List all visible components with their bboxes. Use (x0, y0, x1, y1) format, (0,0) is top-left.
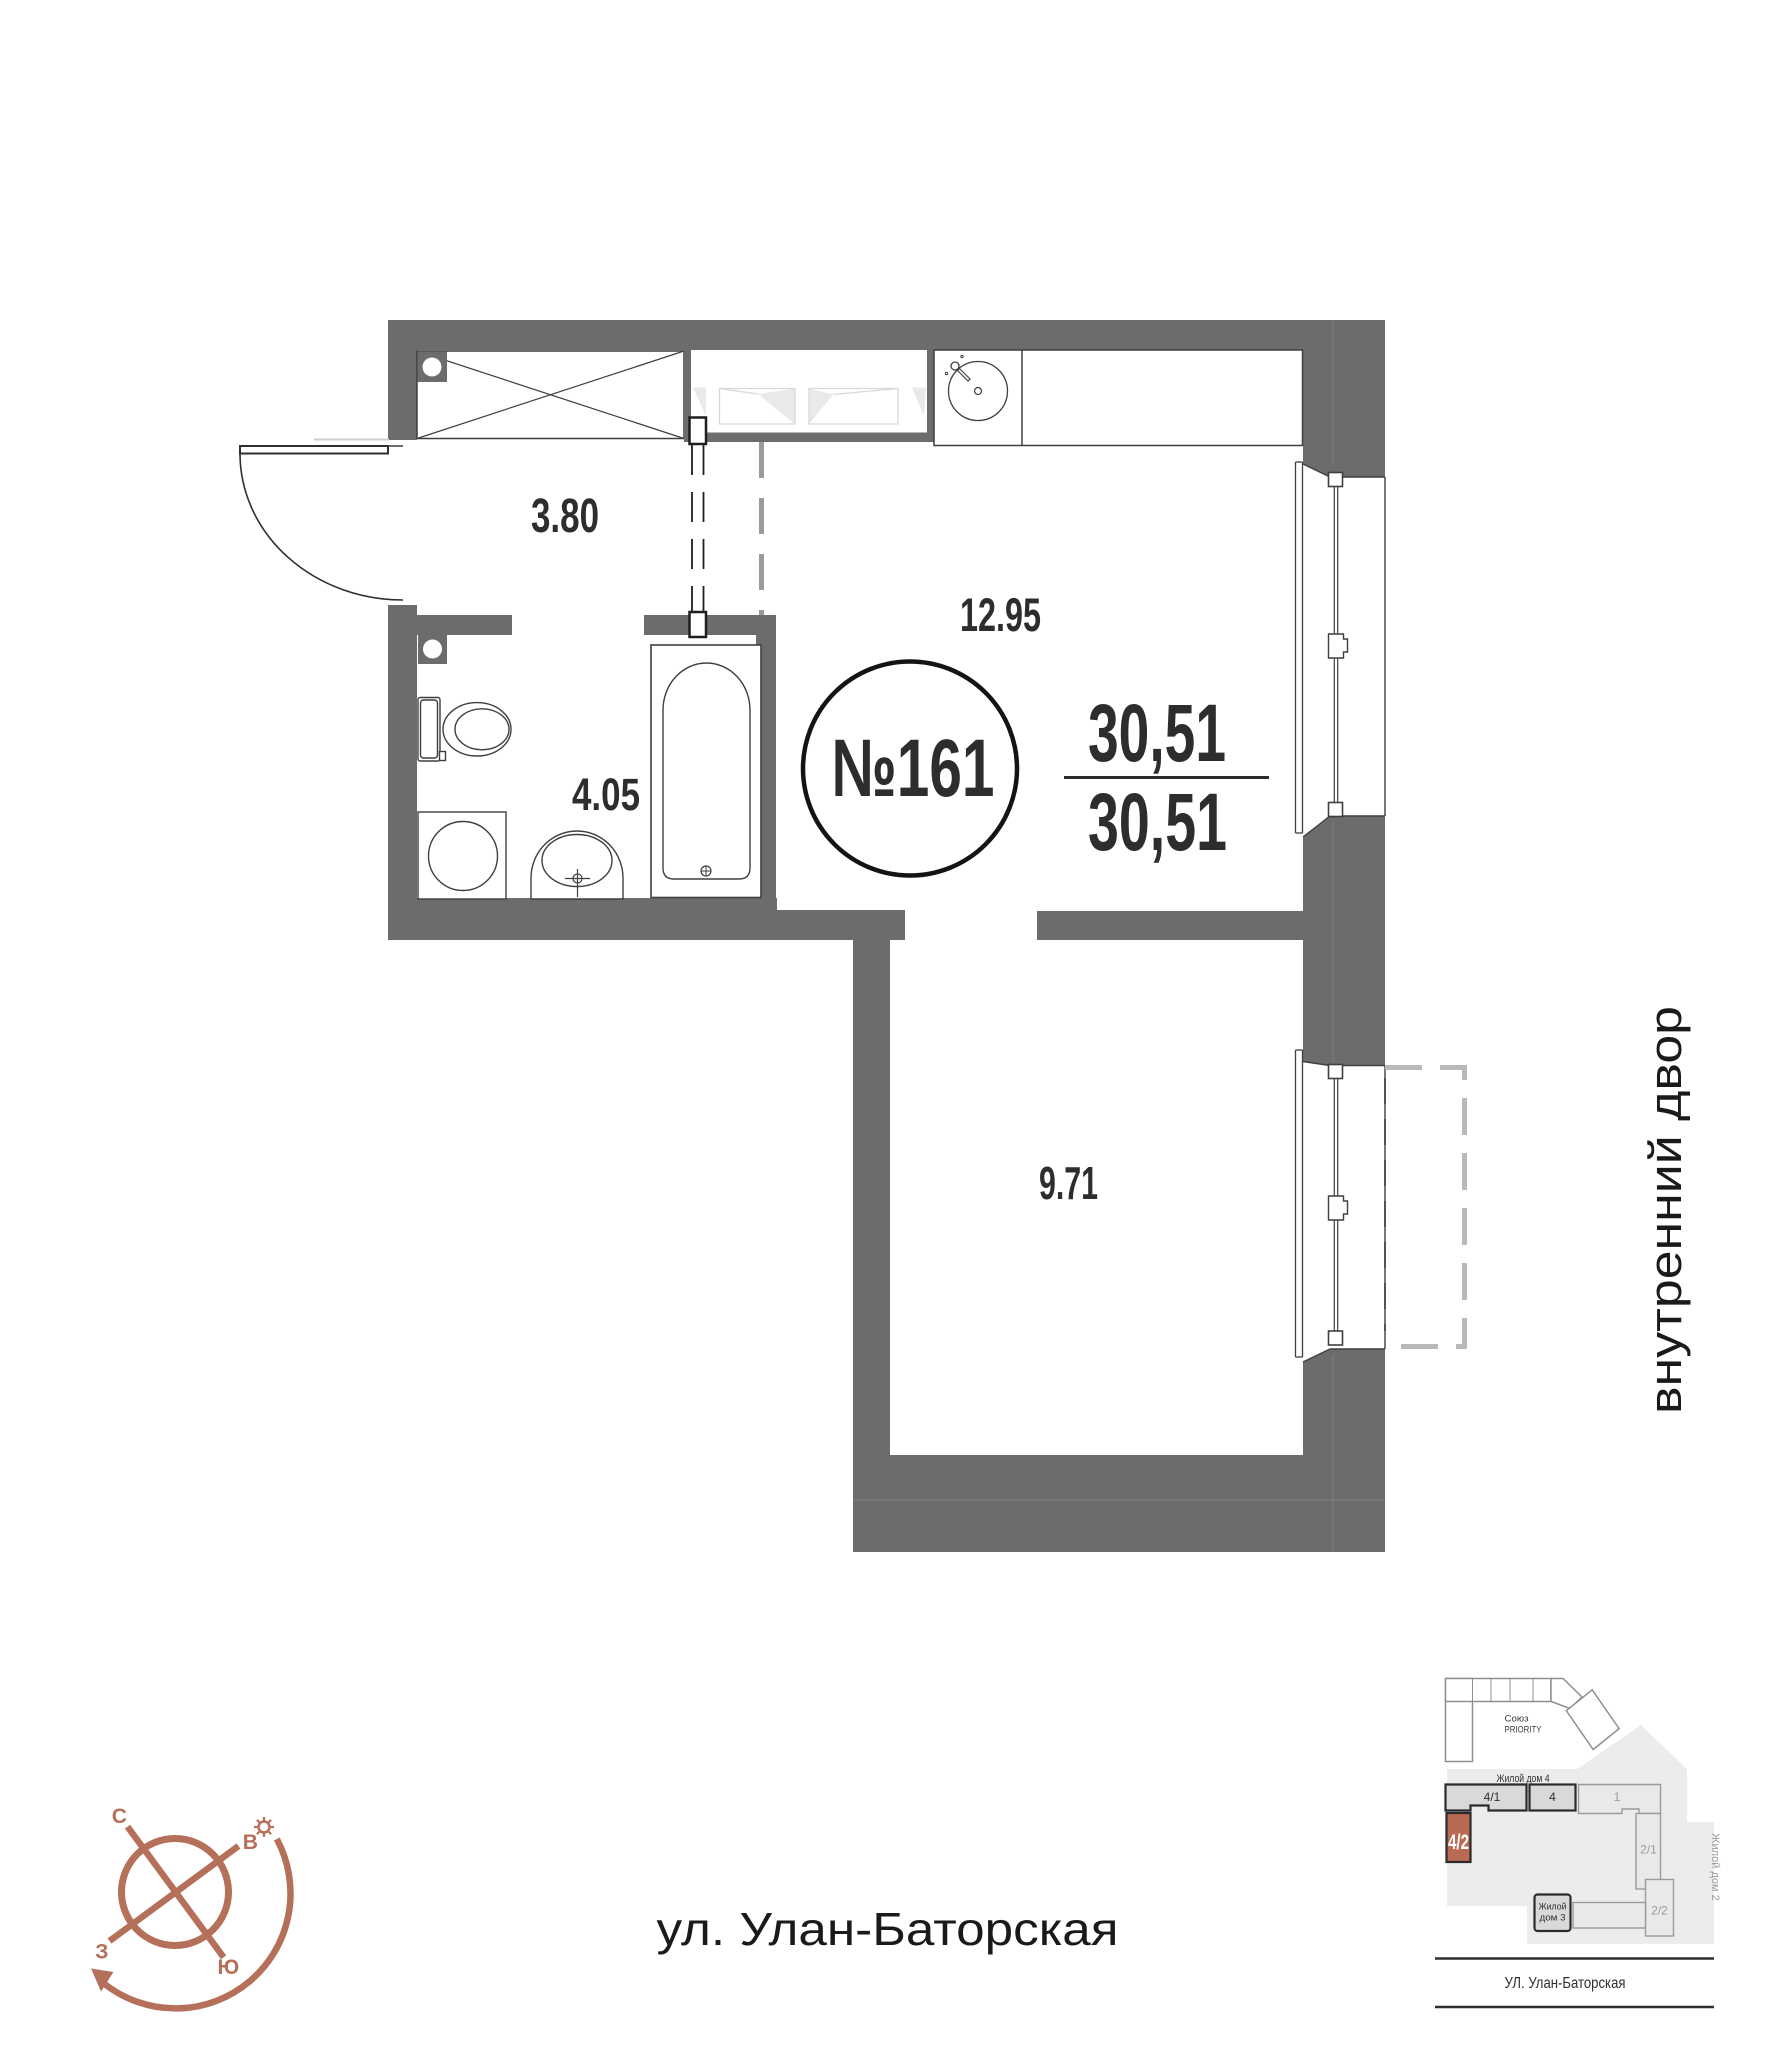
svg-text:ул. Улан-Баторская: ул. Улан-Баторская (657, 1903, 1119, 1955)
svg-text:Союз: Союз (1505, 1714, 1529, 1725)
svg-text:УЛ. Улан-Баторская: УЛ. Улан-Баторская (1505, 1975, 1626, 1992)
svg-text:Жилой дом 4: Жилой дом 4 (1497, 1773, 1550, 1785)
svg-text:№161: №161 (832, 723, 995, 814)
svg-text:4/1: 4/1 (1484, 1790, 1501, 1804)
svg-text:2/2: 2/2 (1651, 1904, 1668, 1918)
svg-text:З: З (95, 1941, 108, 1964)
svg-text:4.05: 4.05 (572, 769, 640, 820)
svg-text:PRIORITY: PRIORITY (1505, 1725, 1543, 1736)
svg-text:Жилой: Жилой (1539, 1902, 1567, 1912)
svg-text:Жилой дом 2: Жилой дом 2 (1709, 1833, 1721, 1900)
svg-text:3.80: 3.80 (531, 490, 599, 543)
svg-text:В: В (243, 1831, 258, 1854)
svg-text:9.71: 9.71 (1039, 1157, 1098, 1209)
svg-text:дом 3: дом 3 (1540, 1913, 1566, 1923)
svg-text:30,51: 30,51 (1088, 777, 1227, 868)
svg-text:2/1: 2/1 (1640, 1843, 1657, 1857)
svg-text:внутренний двор: внутренний двор (1640, 1006, 1691, 1414)
svg-text:4/2: 4/2 (1448, 1831, 1469, 1854)
svg-text:12.95: 12.95 (960, 588, 1041, 641)
svg-text:С: С (112, 1805, 127, 1828)
svg-text:4: 4 (1549, 1790, 1556, 1804)
svg-text:Ю: Ю (217, 1956, 239, 1979)
svg-text:30,51: 30,51 (1088, 688, 1226, 779)
svg-text:1: 1 (1614, 1790, 1621, 1804)
